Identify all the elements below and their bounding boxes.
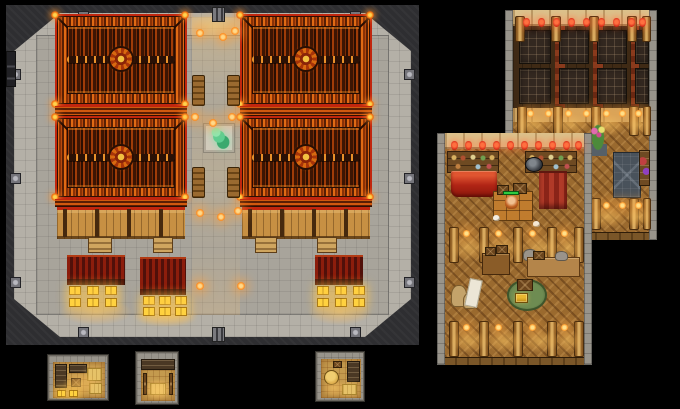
red-lantern xyxy=(465,141,472,150)
central-path xyxy=(192,17,240,315)
lattice-panel xyxy=(635,68,649,104)
porch-post xyxy=(248,209,252,237)
lantern-crate xyxy=(317,286,329,295)
lantern-crate xyxy=(105,298,117,307)
lattice-panel xyxy=(559,68,589,104)
path-bench xyxy=(227,167,240,198)
stone-wall-edge xyxy=(584,133,592,365)
lantern-crate xyxy=(335,286,347,295)
crate xyxy=(517,279,533,291)
chicken xyxy=(493,215,500,221)
lattice-panel xyxy=(519,68,551,104)
path-lantern xyxy=(237,282,245,290)
light-pool xyxy=(451,329,487,353)
cabinet xyxy=(639,150,650,186)
npc-health-bar xyxy=(503,191,519,195)
red-lantern xyxy=(523,18,530,27)
light-pool xyxy=(323,379,345,397)
red-lantern xyxy=(553,18,560,27)
roof-eave xyxy=(240,199,372,207)
porch-post xyxy=(95,209,99,237)
roof-finial xyxy=(51,11,59,19)
red-lantern xyxy=(479,141,486,150)
roof-finial xyxy=(181,113,189,121)
lantern-crate xyxy=(87,286,99,295)
crate xyxy=(485,247,496,256)
path-lantern xyxy=(196,282,204,290)
porch-steps xyxy=(88,237,112,253)
lantern-crate xyxy=(69,390,78,397)
cauldron xyxy=(525,157,543,172)
light-pool xyxy=(589,206,627,228)
red-lantern xyxy=(507,141,514,150)
roof-eave xyxy=(240,106,372,116)
red-lantern xyxy=(613,18,620,27)
lantern-crate xyxy=(353,286,365,295)
light-pool xyxy=(521,329,559,353)
roof-medallion xyxy=(110,48,132,70)
path-lantern xyxy=(196,209,204,217)
north-gate-post xyxy=(212,7,225,22)
room-thumbnail-3[interactable] xyxy=(316,352,364,401)
grey-sack xyxy=(555,251,568,261)
lantern-crate xyxy=(159,296,171,305)
floor-mat xyxy=(613,152,641,198)
map-canvas xyxy=(0,0,680,409)
wall-pillar xyxy=(78,327,89,338)
roof-finial xyxy=(181,11,189,19)
baseboard xyxy=(445,357,584,365)
roof-finial xyxy=(236,11,244,19)
lantern-crate xyxy=(175,296,187,305)
shelf-block xyxy=(347,361,360,382)
roof-finial xyxy=(236,113,244,121)
light-pool xyxy=(625,206,651,228)
path-lantern xyxy=(191,113,199,121)
roof-finial xyxy=(366,11,374,19)
wall-pillar xyxy=(404,173,415,184)
red-lantern xyxy=(563,141,570,150)
porch-steps xyxy=(317,237,337,253)
shelf-block xyxy=(141,359,175,370)
red-lantern xyxy=(583,18,590,27)
treasure-chest xyxy=(515,293,528,303)
market-stall xyxy=(67,255,125,285)
roof-medallion xyxy=(295,48,317,70)
room-thumbnail-1[interactable] xyxy=(48,355,108,400)
stone-wall-edge xyxy=(437,133,445,365)
porch-post xyxy=(280,209,284,237)
lantern-crate xyxy=(159,307,171,316)
red-lantern xyxy=(493,141,500,150)
porch-post xyxy=(63,209,67,237)
long-table xyxy=(527,257,580,277)
path-bench xyxy=(192,167,205,198)
light-pool xyxy=(144,379,172,401)
wall-pillar xyxy=(10,277,21,288)
inn-hall-lower-map[interactable] xyxy=(437,133,592,365)
lattice-panel xyxy=(597,68,627,104)
red-lantern xyxy=(538,18,545,27)
porch-deck xyxy=(57,207,185,239)
light-pool xyxy=(625,114,651,136)
courtyard-map[interactable] xyxy=(6,5,419,345)
lantern-crate xyxy=(69,298,81,307)
lantern-crate xyxy=(335,298,347,307)
porch-post xyxy=(127,209,131,237)
red-lantern xyxy=(521,141,528,150)
wall-pillar xyxy=(404,69,415,80)
roof-medallion xyxy=(110,146,132,168)
red-lantern xyxy=(598,18,605,27)
porch-steps xyxy=(153,237,173,253)
lantern-crate xyxy=(143,296,155,305)
jade-fish-statue xyxy=(207,125,233,151)
south-gate-post xyxy=(212,327,225,342)
path-lantern xyxy=(217,213,225,221)
npc-sprite xyxy=(505,196,518,209)
roof-eave xyxy=(55,199,187,207)
porch-post xyxy=(159,209,163,237)
wood-table xyxy=(482,253,510,275)
market-stall xyxy=(315,255,363,285)
lantern-crate xyxy=(175,307,187,316)
path-bench xyxy=(227,75,240,106)
red-lantern xyxy=(639,18,646,27)
porch-deck xyxy=(242,207,370,239)
wall-pillar xyxy=(350,327,361,338)
lantern-crate xyxy=(87,298,99,307)
lattice-panel xyxy=(597,30,627,64)
light-pool xyxy=(485,329,523,353)
path-bench xyxy=(192,75,205,106)
jar-shelf xyxy=(447,151,499,173)
red-lantern xyxy=(451,141,458,150)
path-lantern xyxy=(228,113,236,121)
lattice-panel xyxy=(559,30,589,64)
wall-pillar xyxy=(404,277,415,288)
lantern-crate xyxy=(143,307,155,316)
lantern-crate xyxy=(353,298,365,307)
red-lantern xyxy=(549,141,556,150)
roof-finial xyxy=(51,113,59,121)
red-lantern xyxy=(628,18,635,27)
roof-medallion xyxy=(295,146,317,168)
roof-finial xyxy=(366,113,374,121)
crate xyxy=(333,361,342,368)
path-lantern xyxy=(209,119,217,127)
red-lantern xyxy=(575,141,582,150)
lantern-crate xyxy=(317,298,329,307)
path-lantern xyxy=(219,33,227,41)
lantern-crate xyxy=(105,286,117,295)
porch-post xyxy=(344,209,348,237)
porch-post xyxy=(312,209,316,237)
path-lantern xyxy=(196,29,204,37)
red-lantern xyxy=(535,141,542,150)
lantern-crate xyxy=(57,390,66,397)
red-curtain xyxy=(539,171,567,209)
crate xyxy=(533,251,545,260)
path-lantern xyxy=(234,207,242,215)
red-cloth-table xyxy=(451,171,497,197)
light-pool xyxy=(555,329,581,353)
red-lantern xyxy=(568,18,575,27)
porch-steps xyxy=(255,237,277,253)
path-lantern xyxy=(231,27,239,35)
market-stall xyxy=(140,257,186,295)
lantern-crate xyxy=(69,286,81,295)
west-gate-door xyxy=(6,51,16,87)
wall-pillar xyxy=(10,173,21,184)
room-thumbnail-2[interactable] xyxy=(136,352,178,404)
crate xyxy=(496,245,508,254)
roof-eave xyxy=(55,106,187,116)
chicken xyxy=(533,221,540,227)
